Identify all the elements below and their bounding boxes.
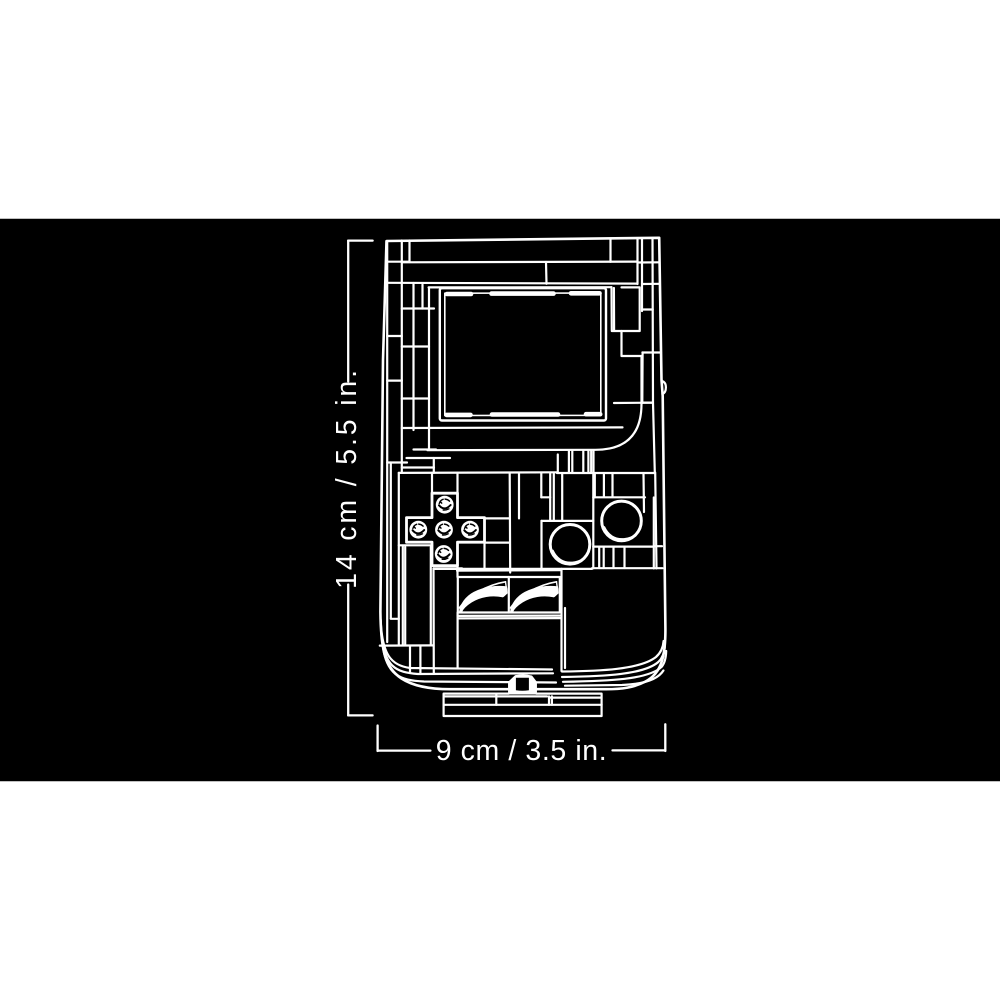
- svg-text:9 cm / 3.5 in.: 9 cm / 3.5 in.: [436, 735, 608, 767]
- svg-text:14 cm / 5.5 in.: 14 cm / 5.5 in.: [331, 367, 363, 589]
